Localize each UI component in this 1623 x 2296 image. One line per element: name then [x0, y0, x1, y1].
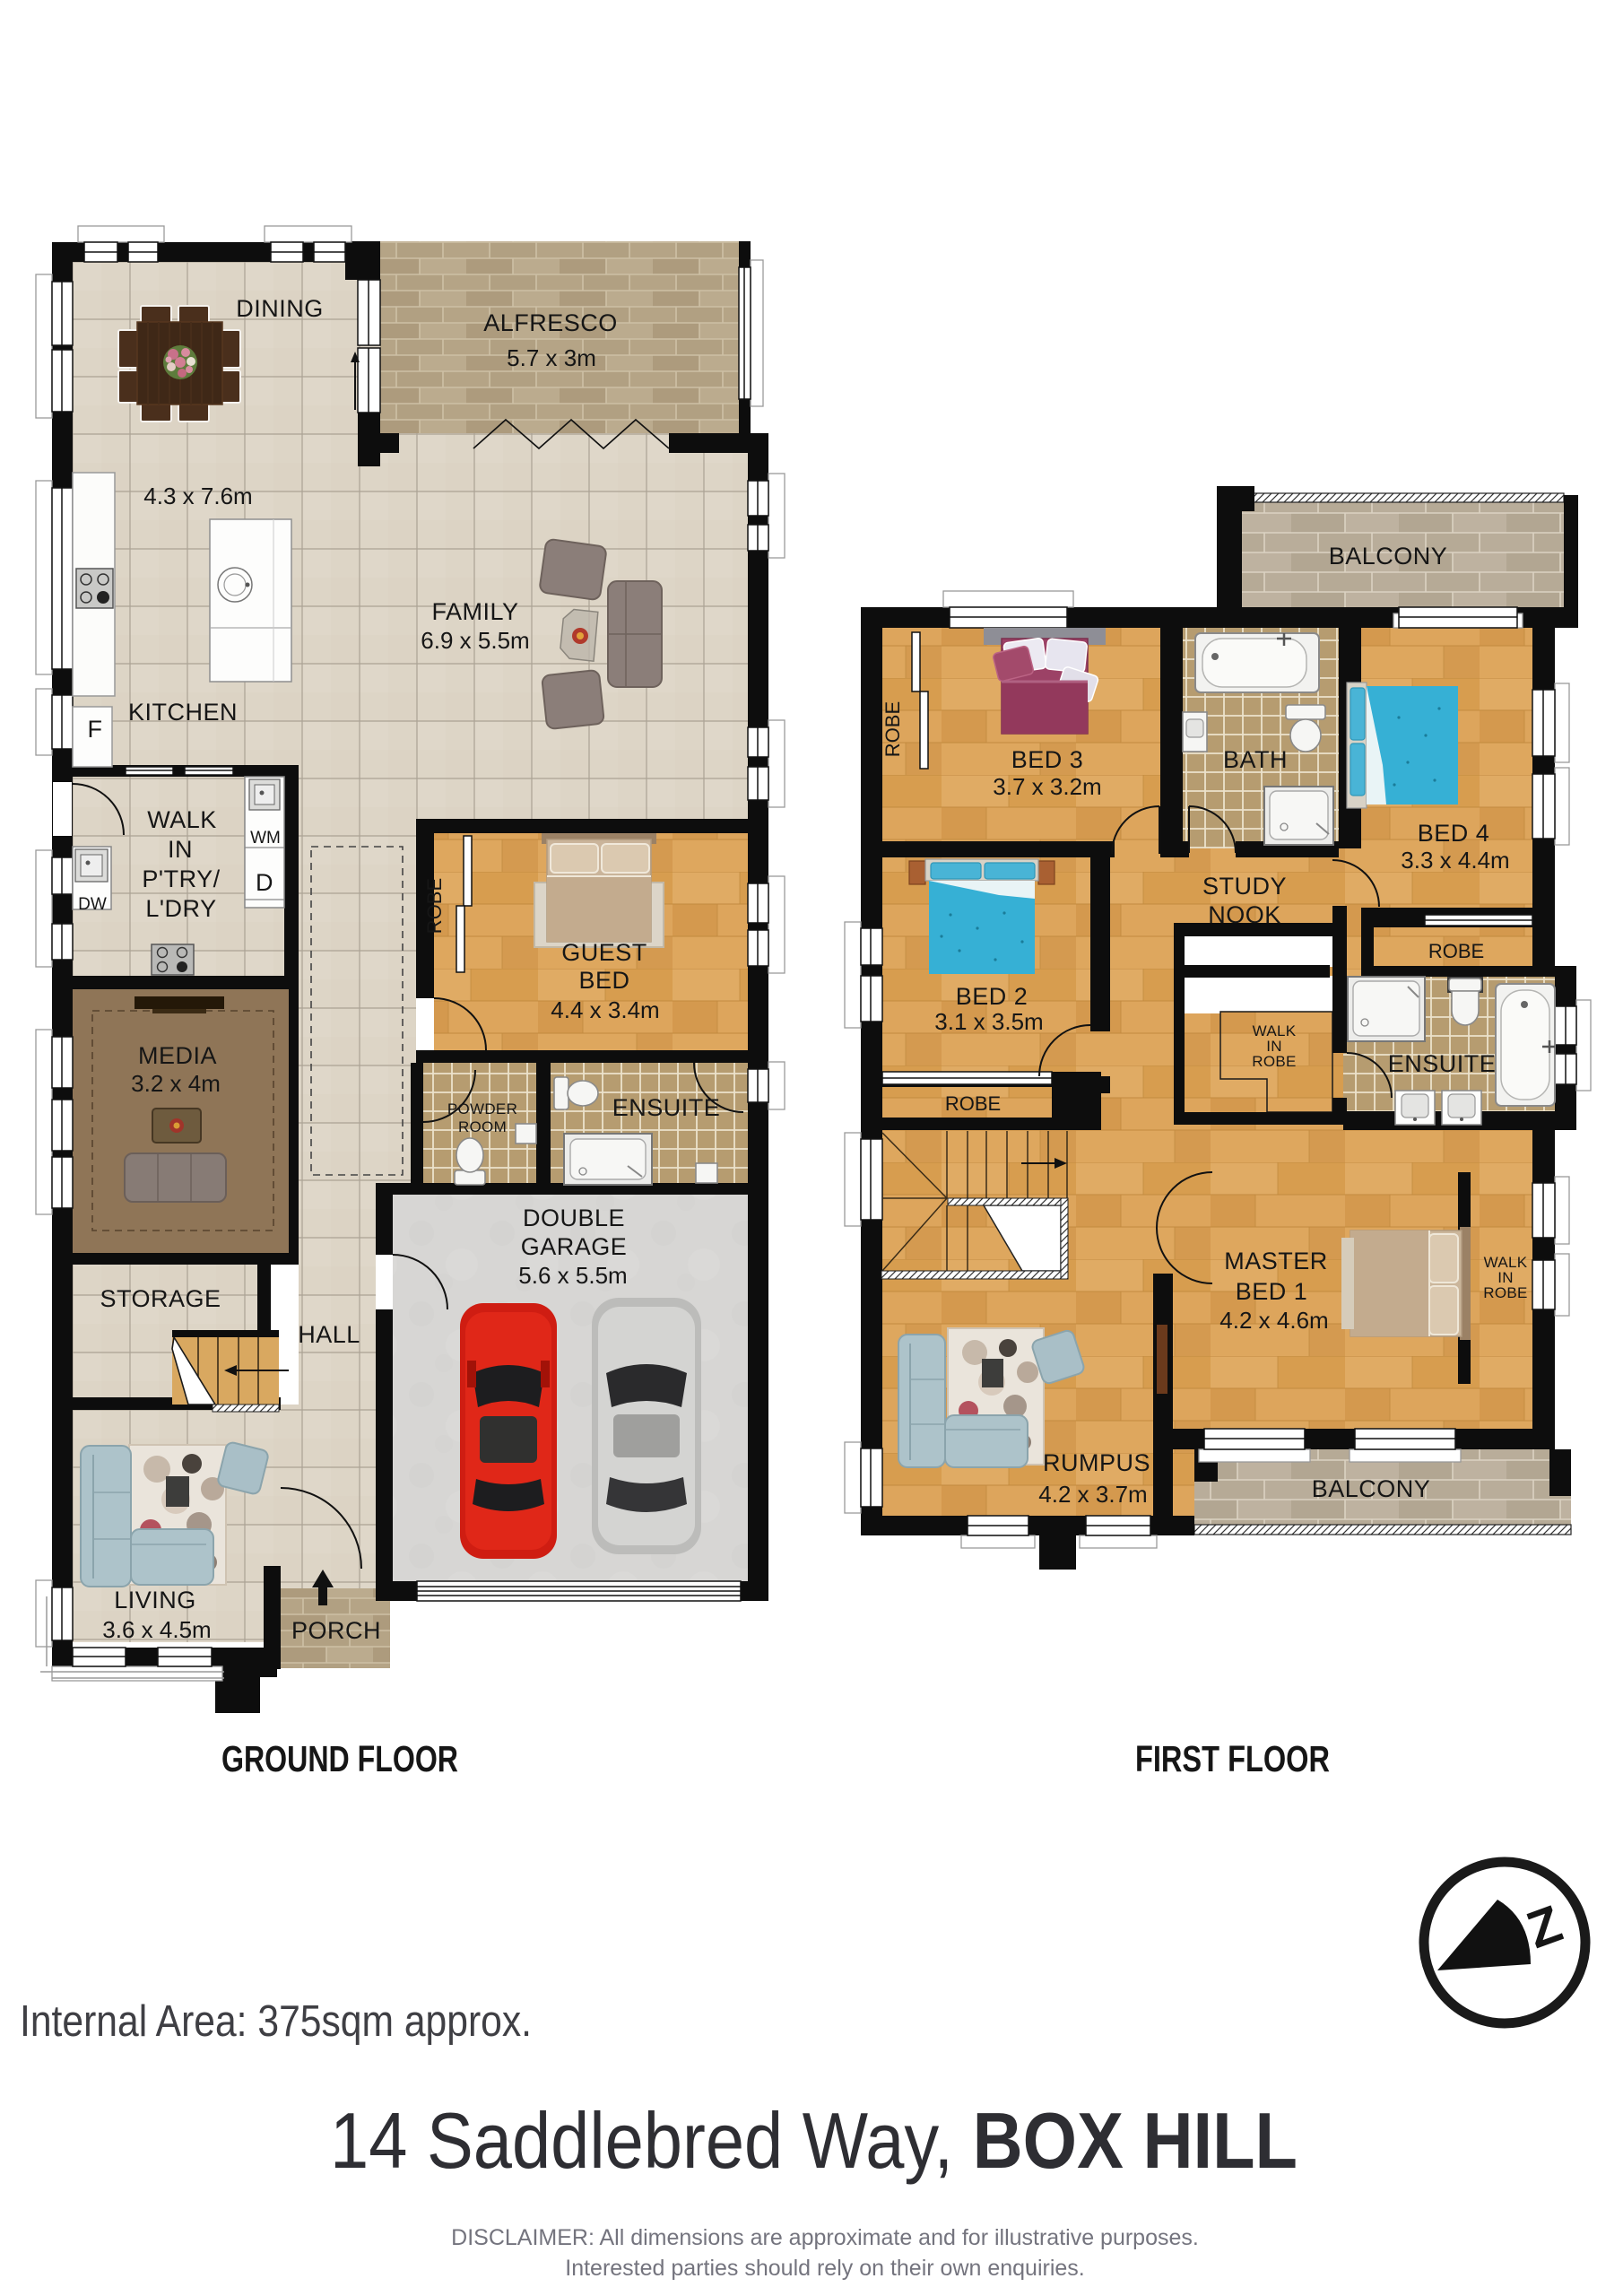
- svg-text:ROBE: ROBE: [1483, 1284, 1527, 1301]
- svg-text:ROBE: ROBE: [1428, 940, 1484, 962]
- svg-text:BED 4: BED 4: [1418, 820, 1490, 847]
- svg-text:4.3 x 7.6m: 4.3 x 7.6m: [143, 483, 252, 509]
- svg-text:STUDY: STUDY: [1202, 873, 1287, 900]
- svg-text:ENSUITE: ENSUITE: [1388, 1050, 1497, 1077]
- svg-text:BED 1: BED 1: [1236, 1278, 1308, 1305]
- svg-text:IN: IN: [168, 836, 193, 863]
- svg-text:Internal Area: 375sqm approx.: Internal Area: 375sqm approx.: [20, 1997, 532, 2046]
- svg-text:Interested parties should rely: Interested parties should rely on their …: [565, 2256, 1085, 2281]
- svg-text:6.9 x 5.5m: 6.9 x 5.5m: [421, 627, 529, 654]
- svg-text:BATH: BATH: [1223, 746, 1288, 773]
- svg-text:GROUND FLOOR: GROUND FLOOR: [221, 1738, 458, 1779]
- svg-text:WM: WM: [250, 829, 281, 848]
- svg-text:DINING: DINING: [236, 295, 324, 322]
- svg-text:POWDER: POWDER: [447, 1100, 517, 1118]
- svg-text:GUEST: GUEST: [561, 939, 647, 966]
- svg-text:DW: DW: [78, 895, 107, 914]
- svg-text:5.7 x 3m: 5.7 x 3m: [507, 344, 596, 371]
- svg-text:MEDIA: MEDIA: [138, 1042, 217, 1069]
- svg-text:5.6 x 5.5m: 5.6 x 5.5m: [518, 1262, 627, 1289]
- svg-text:ROBE: ROBE: [945, 1092, 1001, 1115]
- svg-text:HALL: HALL: [298, 1321, 360, 1348]
- svg-text:ENSUITE: ENSUITE: [612, 1094, 721, 1121]
- svg-text:BED: BED: [578, 967, 629, 994]
- svg-text:DISCLAIMER: All dimensions are: DISCLAIMER: All dimensions are approxima…: [451, 2225, 1199, 2250]
- svg-text:P'TRY/: P'TRY/: [142, 865, 220, 892]
- svg-text:ROBE: ROBE: [881, 701, 904, 757]
- svg-text:MASTER: MASTER: [1224, 1248, 1328, 1274]
- svg-text:LIVING: LIVING: [114, 1587, 196, 1613]
- svg-text:F: F: [88, 716, 103, 743]
- svg-text:RUMPUS: RUMPUS: [1043, 1449, 1150, 1476]
- svg-text:ALFRESCO: ALFRESCO: [483, 309, 618, 336]
- svg-text:ROOM: ROOM: [458, 1118, 507, 1135]
- svg-text:FIRST FLOOR: FIRST FLOOR: [1135, 1738, 1330, 1779]
- svg-text:3.2 x 4m: 3.2 x 4m: [131, 1070, 221, 1097]
- svg-text:BED 2: BED 2: [956, 983, 1028, 1010]
- svg-text:BALCONY: BALCONY: [1329, 543, 1448, 570]
- svg-text:DOUBLE: DOUBLE: [523, 1205, 625, 1231]
- svg-text:ROBE: ROBE: [1252, 1053, 1296, 1070]
- svg-text:14 Saddlebred Way, BOX HILL: 14 Saddlebred Way, BOX HILL: [330, 2096, 1298, 2185]
- svg-text:PORCH: PORCH: [291, 1617, 381, 1644]
- svg-text:WALK: WALK: [147, 806, 217, 833]
- svg-text:ROBE: ROBE: [423, 878, 446, 934]
- svg-text:4.2 x 4.6m: 4.2 x 4.6m: [1219, 1307, 1328, 1334]
- svg-text:KITCHEN: KITCHEN: [128, 699, 238, 726]
- svg-text:BED 3: BED 3: [1011, 746, 1084, 773]
- svg-text:3.6 x 4.5m: 3.6 x 4.5m: [102, 1616, 211, 1643]
- svg-text:3.1 x 3.5m: 3.1 x 3.5m: [934, 1008, 1043, 1035]
- svg-text:BALCONY: BALCONY: [1312, 1475, 1431, 1502]
- svg-text:3.7 x 3.2m: 3.7 x 3.2m: [993, 773, 1101, 800]
- svg-text:STORAGE: STORAGE: [100, 1285, 221, 1312]
- svg-text:3.3 x 4.4m: 3.3 x 4.4m: [1401, 847, 1509, 874]
- svg-text:4.4 x 3.4m: 4.4 x 3.4m: [551, 996, 659, 1023]
- svg-text:4.2 x 3.7m: 4.2 x 3.7m: [1038, 1481, 1147, 1508]
- svg-text:GARAGE: GARAGE: [521, 1233, 628, 1260]
- svg-text:D: D: [256, 869, 273, 896]
- svg-text:L'DRY: L'DRY: [145, 895, 216, 922]
- svg-text:FAMILY: FAMILY: [431, 598, 518, 625]
- svg-text:NOOK: NOOK: [1208, 901, 1281, 928]
